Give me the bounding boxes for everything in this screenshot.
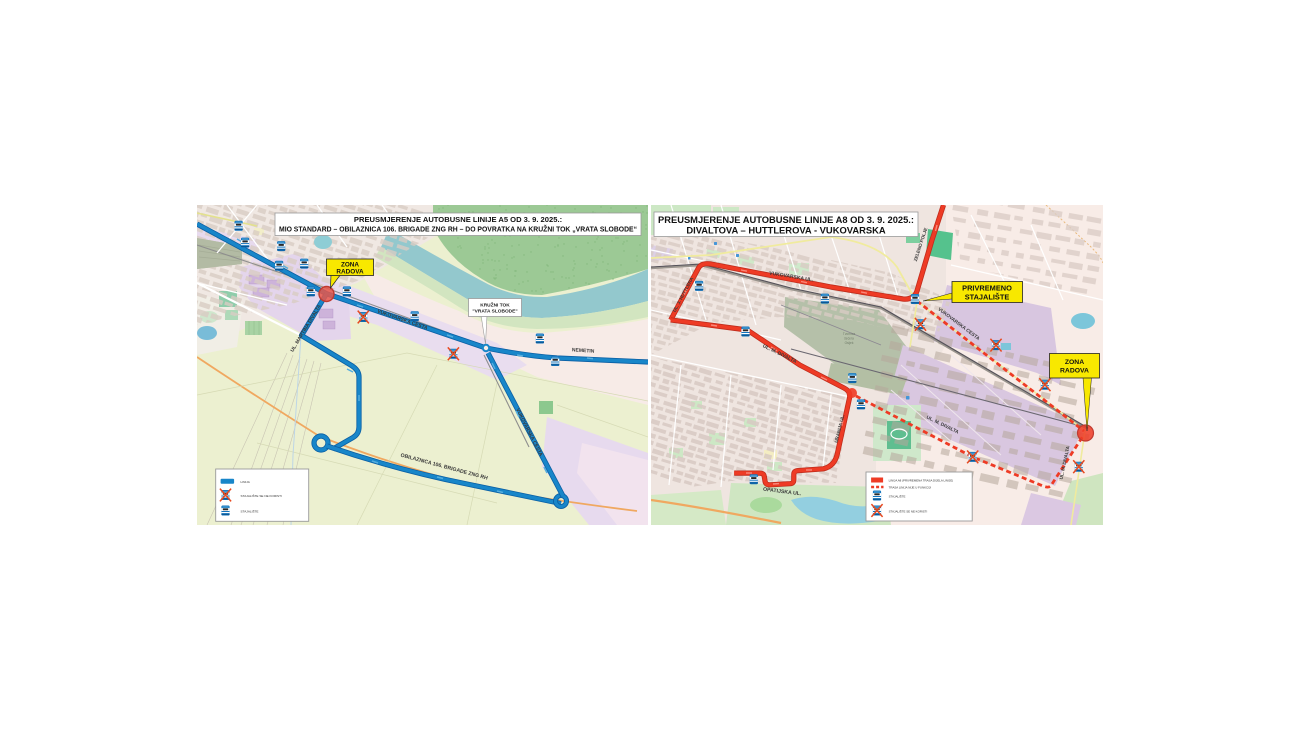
svg-text:LINIJA: LINIJA [241,480,251,484]
svg-text:ZONA: ZONA [1065,359,1084,366]
svg-text:LINIJA A8 (PRIVREMENA TRASA: LINIJA A8 (PRIVREMENA TRASA DIJELA LINIJ… [889,479,954,483]
svg-text:DIVALTOVA – HUTTLEROVA - VUKOV: DIVALTOVA – HUTTLEROVA - VUKOVARSKA [686,225,886,236]
svg-text:"VRATA SLOBODE": "VRATA SLOBODE" [472,309,517,315]
svg-text:MIO STANDARD – OBILAZNICA 106.: MIO STANDARD – OBILAZNICA 106. BRIGADE Z… [279,225,637,234]
svg-text:PREUSMJERENJE AUTOBUSNE LINIJE: PREUSMJERENJE AUTOBUSNE LINIJE A8 OD 3. … [658,214,914,225]
svg-text:STAJALIŠTE SE NE KORISTI: STAJALIŠTE SE NE KORISTI [889,508,928,513]
svg-text:TRASA LINIJA NIJE U FUNKCIJI: TRASA LINIJA NIJE U FUNKCIJI [889,485,932,489]
svg-text:ZONA: ZONA [341,261,359,268]
svg-text:PRIVREMENO: PRIVREMENO [962,284,1012,293]
svg-text:STAJALIŠTE: STAJALIŠTE [889,493,906,498]
svg-text:STAJALIŠTE: STAJALIŠTE [241,508,259,513]
svg-text:PREUSMJERENJE AUTOBUSNE LINIJE: PREUSMJERENJE AUTOBUSNE LINIJE A5 OD 3. … [354,215,562,224]
svg-text:STAJALIŠTE: STAJALIŠTE [965,293,1010,302]
svg-text:šećera: šećera [844,337,854,341]
svg-text:RADOVA: RADOVA [1060,368,1089,375]
svg-text:Osijek: Osijek [845,341,854,345]
svg-text:RADOVA: RADOVA [336,269,364,276]
svg-text:STAJALIŠTE SE NE KORISTI: STAJALIŠTE SE NE KORISTI [241,493,283,498]
svg-text:Tvornica: Tvornica [843,332,855,336]
